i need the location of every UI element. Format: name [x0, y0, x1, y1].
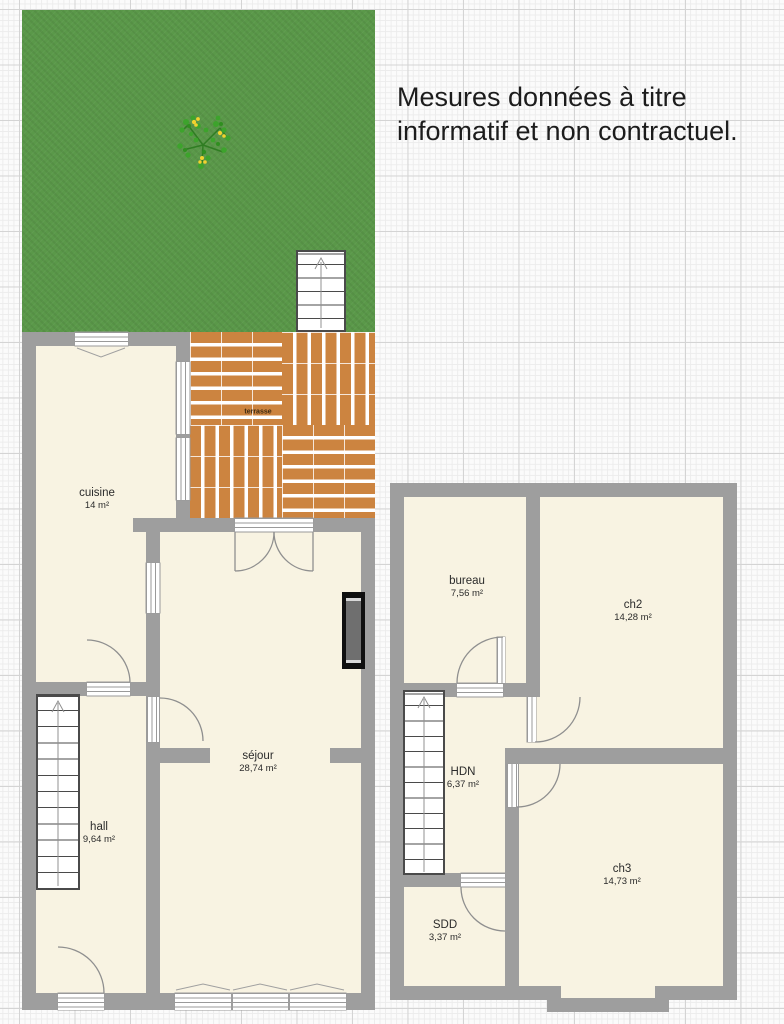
window [176, 438, 190, 500]
door-leaf [527, 697, 536, 742]
room-label-cuisine: cuisine 14 m² [79, 486, 115, 512]
terrace-deck-quadrant [282, 332, 375, 425]
window [146, 563, 160, 613]
wall-segment [547, 986, 561, 1000]
upper-stairs [403, 690, 445, 875]
wall-segment [723, 483, 737, 1000]
wall-segment [146, 748, 210, 763]
garden-stairs [296, 250, 346, 332]
door-sill [457, 683, 503, 697]
hall-stairs [36, 694, 80, 890]
room-label-terrasse: terrasse [244, 409, 271, 416]
room-label-ch2: ch2 14,28 m² [614, 598, 652, 624]
room-label-hall: hall 9,64 m² [83, 820, 115, 846]
door-leaf [507, 764, 518, 807]
french-door-sill [235, 518, 313, 532]
room-label-hdn: HDN 6,37 m² [447, 765, 479, 791]
disclaimer-line-2: informatif et non contractuel. [397, 114, 777, 148]
window [176, 362, 190, 434]
wall-segment [390, 483, 737, 497]
door-leaf [497, 637, 505, 683]
wall-segment [22, 332, 36, 1010]
window-mullion [288, 993, 290, 1010]
wall-segment [390, 986, 561, 1000]
window [175, 993, 346, 1010]
fireplace [342, 592, 365, 669]
door-sill [461, 873, 505, 887]
wall-segment [526, 497, 540, 697]
floor-plan-canvas: Mesures données à titre informatif et no… [0, 0, 784, 1024]
room-label-ch3: ch3 14,73 m² [603, 862, 641, 888]
bush-plant-icon [158, 100, 248, 180]
disclaimer-line-1: Mesures données à titre [397, 80, 777, 114]
front-door-sill [58, 993, 104, 1010]
room-label-bureau: bureau 7,56 m² [449, 574, 485, 600]
window-mullion [231, 993, 233, 1010]
fireplace-hearth [346, 598, 361, 663]
window [75, 332, 128, 346]
room-label-sejour: séjour 28,74 m² [239, 749, 277, 775]
terrace-deck-quadrant [190, 425, 282, 518]
terrace-deck-quadrant [282, 425, 375, 518]
door-leaf [147, 697, 159, 742]
door-leaf [87, 682, 130, 696]
wall-segment [505, 748, 737, 764]
room-label-sdd: SDD 3,37 m² [429, 918, 461, 944]
disclaimer-text: Mesures données à titre informatif et no… [397, 80, 777, 148]
wall-segment [390, 483, 404, 1000]
wall-segment [547, 998, 669, 1012]
